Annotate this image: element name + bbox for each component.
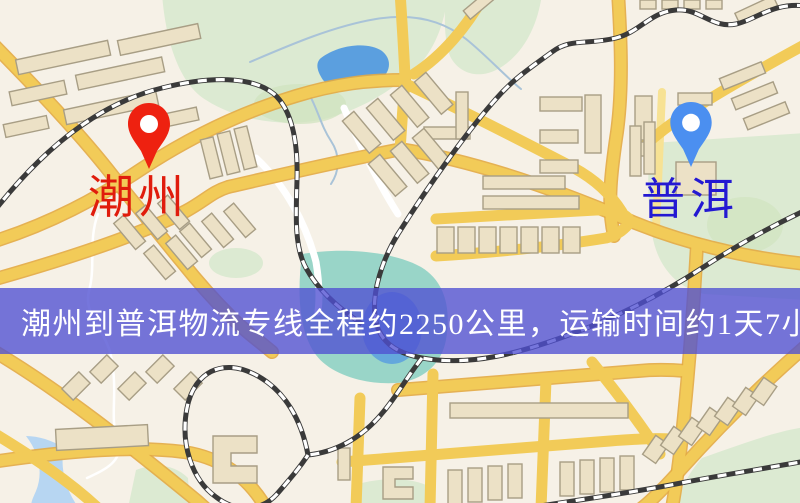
origin-city-label: 潮州 xyxy=(88,175,188,221)
destination-city-label: 普洱 xyxy=(641,178,739,222)
origin-pin-icon[interactable] xyxy=(126,102,172,171)
street-map[interactable] xyxy=(0,0,800,503)
route-info-text: 潮州到普洱物流专线全程约2250公里，运输时间约1天7小时. xyxy=(21,299,800,343)
route-info-banner: 潮州到普洱物流专线全程约2250公里，运输时间约1天7小时. xyxy=(0,288,800,354)
map-canvas[interactable]: 潮州到普洱物流专线全程约2250公里，运输时间约1天7小时. 潮州 普洱 xyxy=(0,0,800,503)
destination-pin-icon[interactable] xyxy=(668,101,714,169)
